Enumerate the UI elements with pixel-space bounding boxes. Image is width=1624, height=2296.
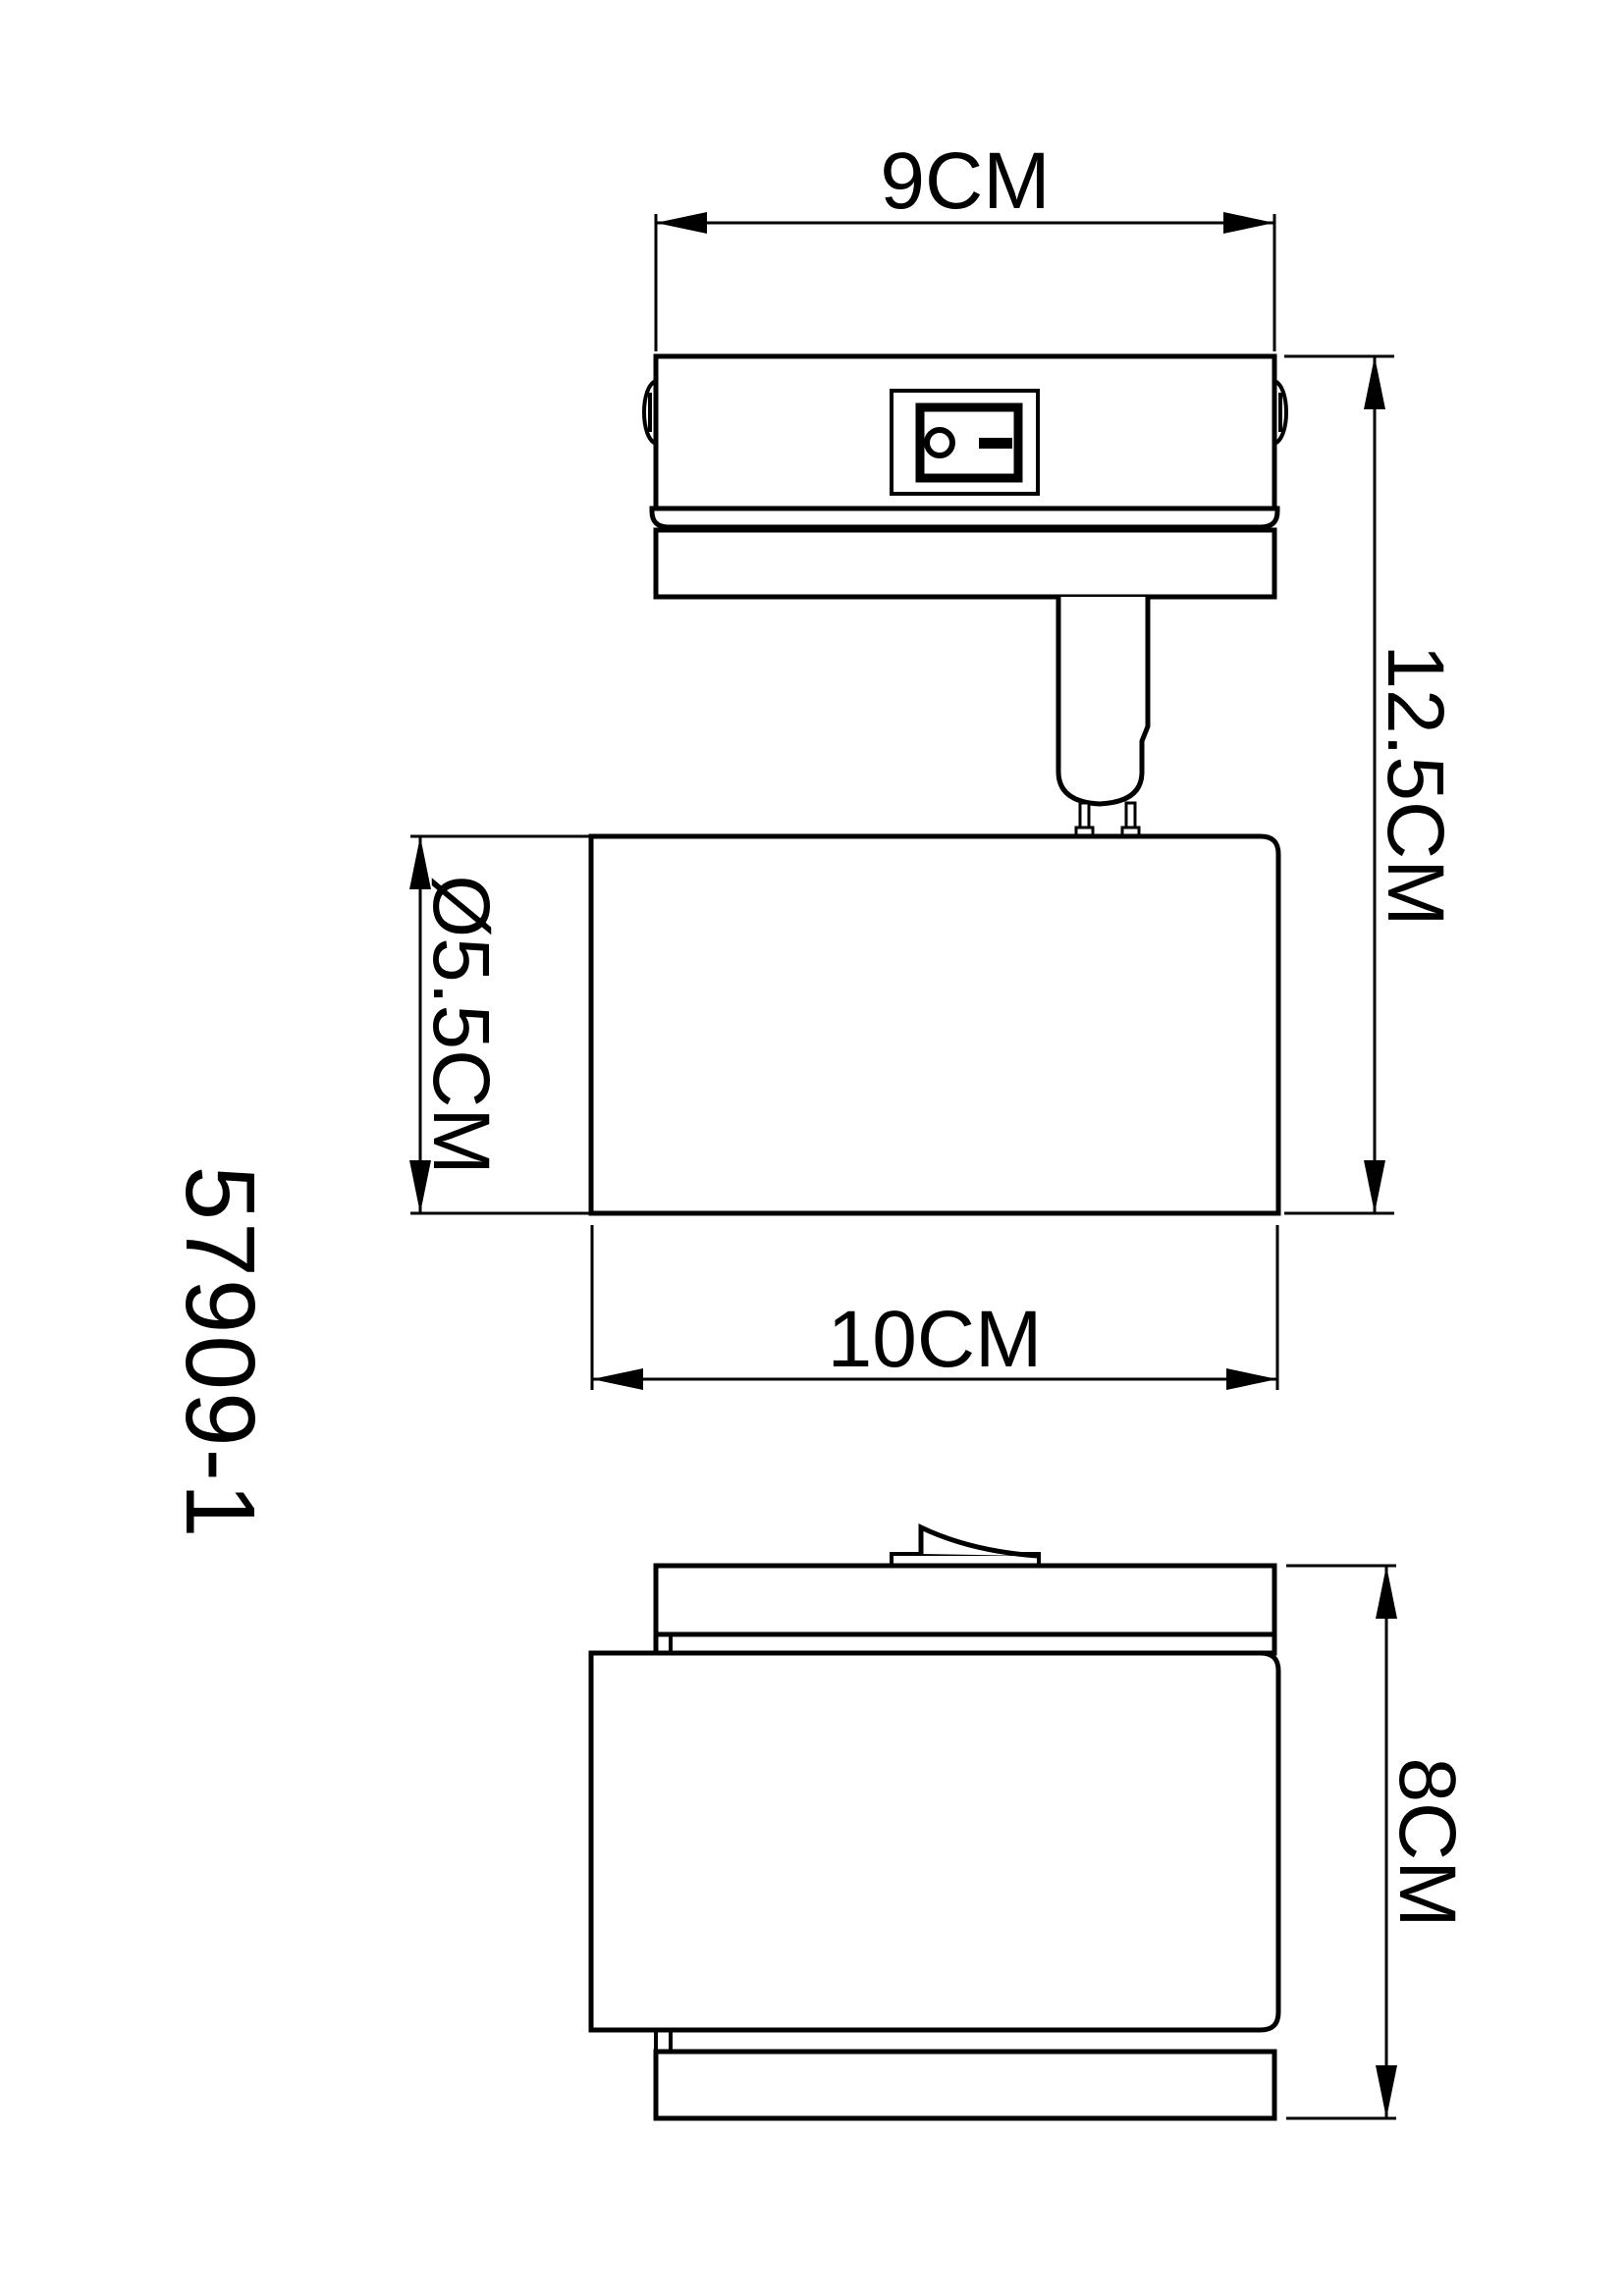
- lamp-stem: [1058, 597, 1148, 804]
- front-mount-lip: [652, 508, 1277, 527]
- side-shade-body: [591, 1653, 1278, 2030]
- arrow-right-icon: [1223, 212, 1274, 234]
- spotlight-dimension-diagram: 9CM 12.5CM Ø5.5CM 10CM: [0, 0, 1624, 2296]
- side-upper-band: [656, 1634, 1274, 1653]
- dimension-5-5cm: Ø5.5CM: [409, 836, 589, 1213]
- side-switch-lever: [921, 1527, 1037, 1556]
- arrow-left-icon: [656, 212, 707, 234]
- gu10-prongs: [1076, 803, 1139, 836]
- dim-label-10cm: 10CM: [828, 1295, 1043, 1384]
- gu10-prong-right: [1126, 803, 1135, 828]
- dimension-9cm: 9CM: [656, 136, 1274, 351]
- arrow-down-icon: [1376, 2065, 1397, 2118]
- arrow-up-icon: [1364, 356, 1385, 409]
- dimension-12-5cm: 12.5CM: [1284, 356, 1460, 1213]
- dimension-8cm: 8CM: [1286, 1566, 1472, 2118]
- technical-drawing-sheet: 9CM 12.5CM Ø5.5CM 10CM: [0, 0, 1624, 2296]
- side-bottom-band: [656, 2052, 1274, 2118]
- dimension-10cm: 10CM: [592, 1225, 1277, 1390]
- front-view: [591, 356, 1286, 1213]
- dim-label-12-5cm: 12.5CM: [1371, 644, 1460, 926]
- side-mount-plate: [656, 1566, 1274, 1634]
- arrow-down-icon: [1364, 1160, 1385, 1213]
- arrow-left-icon: [592, 1368, 643, 1390]
- side-view: [591, 1527, 1278, 2118]
- dim-label-5-5cm: Ø5.5CM: [416, 875, 506, 1174]
- dim-label-9cm: 9CM: [880, 136, 1050, 226]
- front-canopy-band: [656, 530, 1274, 597]
- gu10-prong-left: [1080, 803, 1089, 828]
- switch-on-symbol-icon: [979, 438, 1012, 449]
- arrow-right-icon: [1226, 1368, 1277, 1390]
- arrow-up-icon: [1376, 1566, 1397, 1619]
- dim-label-8cm: 8CM: [1382, 1757, 1472, 1927]
- front-shade-body: [591, 836, 1278, 1213]
- model-number-label: 57909-1: [165, 1166, 275, 1540]
